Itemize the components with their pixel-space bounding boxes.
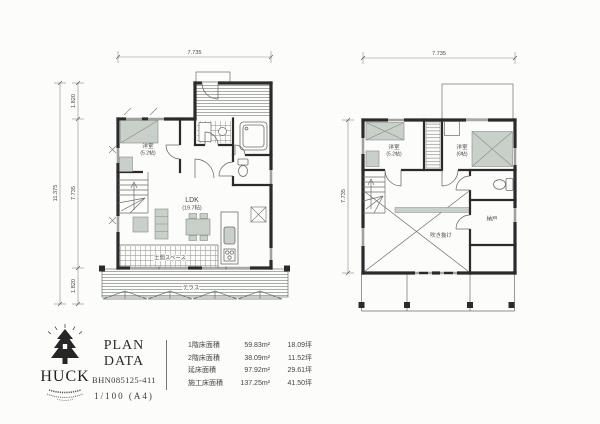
label-ldk: LDK	[185, 197, 199, 204]
label-bedroom-1f: 洋室	[142, 142, 154, 150]
area-sqm: 59.83m²	[236, 340, 270, 353]
dim-left-2f: 7.735	[341, 189, 347, 203]
kitchen-counter	[221, 212, 238, 264]
area-sqm: 38.09m²	[236, 353, 270, 366]
closet-shelves	[426, 122, 440, 168]
bathtub	[240, 122, 267, 150]
label-bedroom-size-1f: (5.2帖)	[140, 150, 156, 157]
plan-code: BHN085125-411	[84, 375, 164, 385]
toilet-1f	[238, 159, 248, 177]
floor2-plan-drawing: 7.735 7.735	[330, 30, 580, 320]
balcony-outline	[196, 72, 230, 82]
closet-2f-left	[366, 151, 379, 167]
roof-outline	[442, 84, 513, 119]
sink-bowl	[219, 128, 227, 136]
dresser	[445, 122, 460, 136]
label-bedroom2-size: (6帖)	[456, 151, 467, 158]
area-tsubo: 29.61坪	[270, 365, 312, 378]
dim-top-2f: 7.735	[432, 51, 446, 57]
floor2-furniture	[363, 122, 513, 230]
void-railing	[395, 208, 470, 213]
entrance-porch	[197, 85, 270, 118]
sofa	[133, 217, 148, 232]
area-label: 2階床面積	[188, 353, 236, 366]
area-label: 延床面積	[188, 365, 236, 378]
plan-data-block: PLAN DATA BHN085125-411 1/100 (A4)	[84, 338, 164, 401]
table-row: 施工床面積 137.25m² 41.50坪	[188, 378, 312, 391]
plan-scale: 1/100 (A4)	[84, 391, 164, 401]
dim-seg2-1f: 7.735	[71, 186, 77, 200]
pantry-box	[251, 207, 266, 222]
dim-seg1-1f: 1.820	[71, 94, 77, 108]
floor1-plan-drawing: 7.735 11.375 1.820 7.735 1.820	[40, 30, 310, 315]
void-area	[365, 192, 469, 272]
table-row: 1階床面積 59.83m² 18.09坪	[188, 340, 312, 353]
area-table: 1階床面積 59.83m² 18.09坪 2階床面積 38.09m² 11.52…	[188, 340, 312, 390]
title-block-divider	[166, 340, 167, 390]
lower-roof-outline	[359, 275, 515, 312]
label-bedroom1-size: (5.2帖)	[386, 151, 402, 158]
floor2-door-arcs	[385, 170, 470, 229]
area-tsubo: 41.50坪	[270, 378, 312, 391]
area-tsubo: 11.52坪	[270, 353, 312, 366]
label-bedroom1-2f: 洋室	[388, 143, 400, 151]
table-row: 延床面積 97.92m² 29.61坪	[188, 365, 312, 378]
label-storage: 納戸	[487, 215, 498, 223]
closet-1f	[120, 157, 133, 172]
dining-table	[186, 219, 210, 235]
area-sqm: 137.25m²	[236, 378, 270, 391]
plan-data-title: PLAN DATA	[84, 338, 164, 370]
area-sqm: 97.92m²	[236, 365, 270, 378]
stairs-1f	[118, 172, 148, 213]
dim-top-1f: 7.735	[188, 50, 202, 56]
area-label: 施工床面積	[188, 378, 236, 391]
area-tsubo: 18.09坪	[270, 340, 312, 353]
label-doma: 土間スペース	[154, 254, 186, 262]
label-terrace: テラス	[183, 285, 200, 292]
label-void: 吹き抜け	[430, 231, 452, 239]
terrace	[99, 266, 290, 300]
label-ldk-size: (19.7帖)	[182, 204, 202, 212]
dim-seg3-1f: 1.820	[71, 279, 77, 293]
toilet-2f	[494, 179, 514, 191]
label-bedroom2-2f: 洋室	[456, 143, 468, 151]
area-label: 1階床面積	[188, 340, 236, 353]
table-row: 2階床面積 38.09m² 11.52坪	[188, 353, 312, 366]
huck-logo-arc-text	[43, 387, 87, 403]
scanned-floor-plan-page: 7.735 11.375 1.820 7.735 1.820	[0, 0, 600, 424]
title-block: HUCK PLAN DATA BHN085125-411 1/100 (A4) …	[0, 318, 600, 418]
dim-left-total-1f: 11.375	[53, 185, 59, 202]
